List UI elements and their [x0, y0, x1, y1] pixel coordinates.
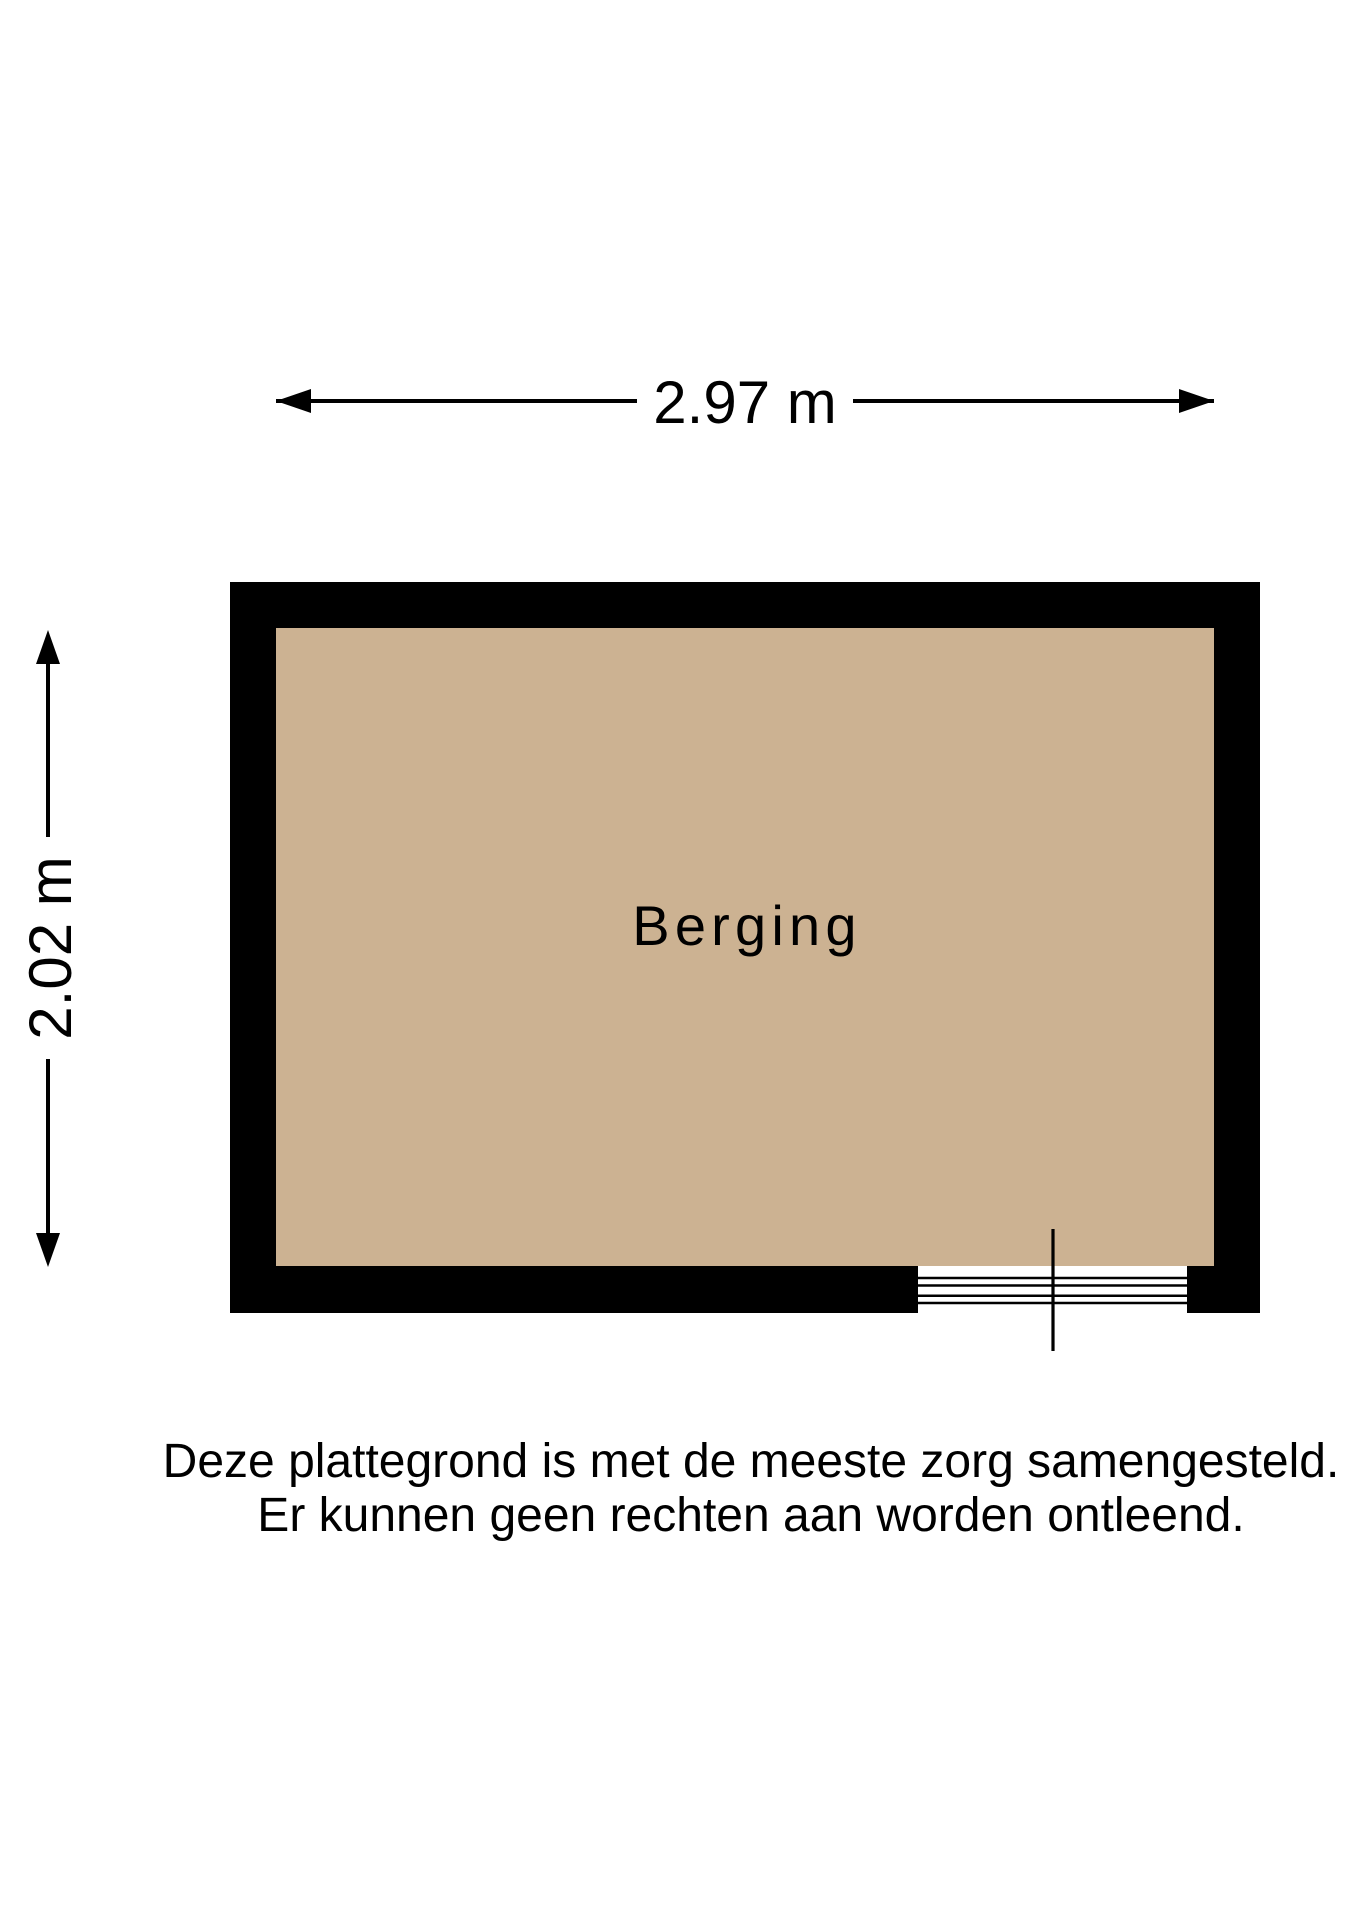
svg-text:2.97 m: 2.97 m [653, 369, 836, 436]
svg-text:2.02 m: 2.02 m [17, 856, 84, 1039]
svg-text:Deze plattegrond is met de mee: Deze plattegrond is met de meeste zorg s… [163, 1435, 1340, 1488]
svg-text:Er kunnen geen rechten aan wor: Er kunnen geen rechten aan worden ontlee… [257, 1489, 1244, 1542]
svg-text:Berging: Berging [632, 894, 861, 957]
